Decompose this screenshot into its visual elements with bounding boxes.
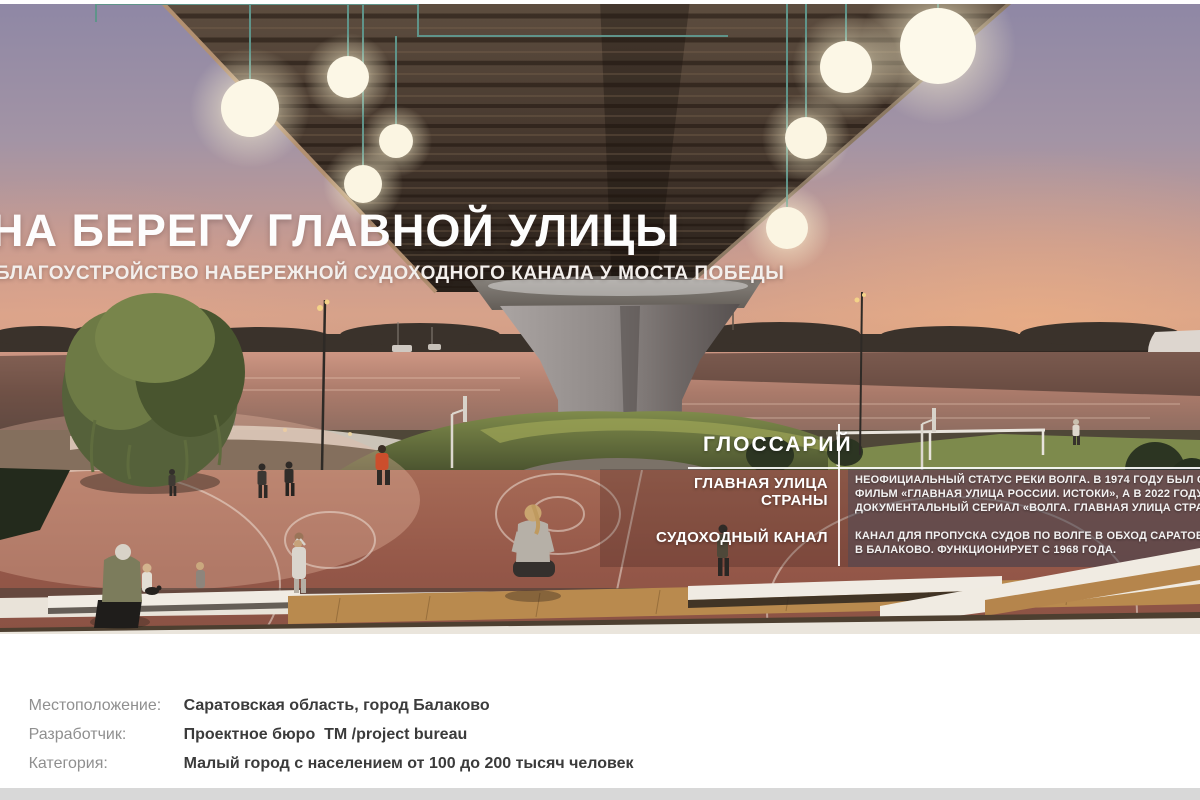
field-row: Местоположение:Саратовская область, горо… xyxy=(0,679,634,708)
top-border xyxy=(0,0,1200,4)
presentation-slide: НА БЕРЕГУ ГЛАВНОЙ УЛИЦЫ БЛАГОУСТРОЙСТВО … xyxy=(0,0,1200,800)
page-subtitle: БЛАГОУСТРОЙСТВО НАБЕРЕЖНОЙ СУДОХОДНОГО К… xyxy=(0,263,784,285)
field-label: Разработчик: xyxy=(29,726,184,744)
field-value: Саратовская область, город Балаково xyxy=(184,697,490,714)
ship xyxy=(1148,330,1200,352)
project-fields: Местоположение:Саратовская область, горо… xyxy=(0,679,634,766)
bottom-border xyxy=(0,788,1200,800)
footer: Местоположение:Саратовская область, горо… xyxy=(0,634,1200,788)
field-value: Малый город с населением от 100 до 200 т… xyxy=(184,755,634,772)
hero-render xyxy=(0,0,1200,634)
glossary-backdrop xyxy=(848,469,1200,567)
scene-illustration xyxy=(0,0,1200,634)
field-value: Проектное бюро ТМ /project bureau xyxy=(184,726,468,743)
page-title: НА БЕРЕГУ ГЛАВНОЙ УЛИЦЫ xyxy=(0,205,680,257)
field-label: Местоположение: xyxy=(29,697,184,715)
field-label: Категория: xyxy=(29,755,184,773)
